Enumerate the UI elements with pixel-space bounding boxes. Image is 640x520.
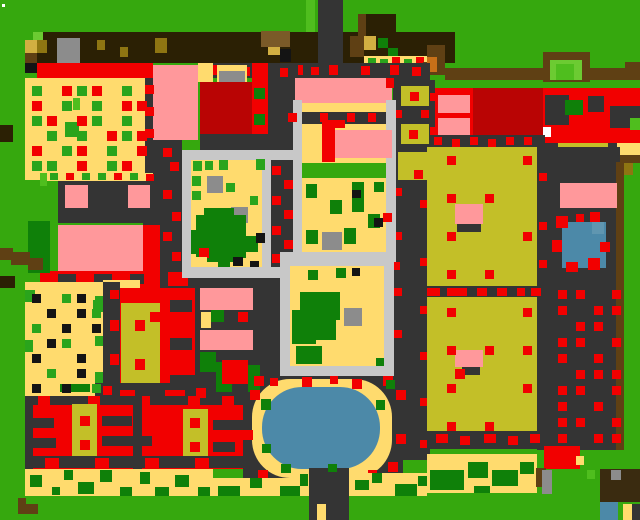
map-region: [280, 252, 396, 266]
map-region: [539, 173, 547, 181]
map-region: [318, 0, 343, 67]
map-region: [394, 330, 402, 338]
map-region: [182, 150, 302, 160]
map-region: [330, 200, 342, 214]
map-region: [374, 218, 383, 227]
map-region: [219, 71, 245, 82]
map-region: [37, 63, 153, 78]
map-region: [531, 288, 541, 296]
map-region: [352, 190, 361, 198]
map-region: [172, 212, 181, 221]
map-region: [100, 470, 112, 482]
crop-field-topleft-dot: [122, 116, 132, 126]
map-region: [556, 64, 574, 80]
map-region: [445, 80, 535, 88]
map-region: [293, 100, 302, 266]
crop-field-midleft-dot: [62, 384, 71, 393]
map-region: [114, 173, 122, 180]
map-region: [45, 458, 59, 468]
map-region: [252, 63, 268, 145]
map-region: [120, 487, 132, 496]
map-region: [412, 67, 421, 76]
map-region: [587, 470, 595, 479]
map-region: [520, 462, 534, 474]
map-region: [460, 436, 470, 445]
map-region: [436, 434, 448, 443]
crop-field-topleft-dot: [107, 161, 117, 171]
map-region: [335, 120, 345, 128]
map-region: [82, 173, 90, 180]
map-region: [256, 233, 265, 243]
crop-field-topleft-dot: [122, 131, 132, 141]
map-region: [455, 369, 465, 379]
dense-dot-grid-right-dot: [576, 322, 585, 331]
map-region: [517, 288, 525, 296]
map-region: [455, 204, 483, 224]
map-region: [396, 434, 406, 444]
map-region: [201, 312, 211, 328]
olive-field-right-dot: [447, 232, 456, 241]
dense-dot-grid-right-dot: [612, 338, 621, 347]
map-region: [65, 185, 88, 208]
crop-field-topleft-dot: [77, 161, 87, 171]
map-region: [135, 320, 145, 331]
dense-dot-grid-right-dot: [612, 306, 621, 315]
map-region: [170, 300, 192, 312]
map-region: [284, 210, 293, 219]
map-region: [219, 160, 228, 170]
map-region: [372, 473, 382, 483]
map-region: [233, 257, 243, 266]
map-region: [376, 358, 384, 366]
map-region: [328, 464, 337, 472]
olive-field-right-dot: [447, 384, 456, 393]
olive-field-right-dot: [523, 308, 532, 317]
map-region: [474, 486, 490, 493]
crop-field-midleft-dot: [92, 324, 101, 333]
map-region: [198, 487, 210, 496]
crop-field-topleft-dot: [77, 116, 87, 126]
map-region: [192, 176, 201, 186]
map-region: [110, 354, 119, 365]
crop-field-topleft-dot: [32, 101, 42, 111]
crop-field-topleft-dot: [62, 86, 72, 96]
map-region: [347, 113, 355, 122]
map-region: [222, 396, 234, 405]
map-region: [384, 252, 394, 376]
crop-field-midleft-dot: [47, 339, 56, 348]
map-region: [254, 376, 264, 386]
map-region: [330, 376, 338, 384]
map-region: [542, 470, 552, 494]
map-region: [213, 442, 235, 452]
map-region: [590, 68, 625, 80]
map-region: [211, 310, 224, 322]
map-region: [218, 486, 240, 496]
map-region: [280, 366, 394, 376]
map-region: [611, 470, 621, 480]
map-region: [470, 137, 478, 145]
map-region: [358, 14, 366, 36]
map-region: [355, 480, 369, 490]
map-region: [588, 96, 604, 112]
crop-field-topleft-dot: [107, 146, 117, 156]
map-region: [25, 40, 37, 53]
crop-field-topleft-dot: [92, 101, 102, 111]
map-region: [477, 288, 487, 296]
map-region: [374, 182, 384, 192]
map-region: [195, 458, 209, 468]
dense-dot-grid-right-dot: [558, 306, 567, 315]
map-region: [284, 180, 293, 189]
map-region: [145, 85, 154, 94]
map-region: [254, 88, 265, 99]
map-region: [103, 282, 120, 396]
crop-field-topleft-dot: [47, 161, 57, 171]
map-region: [261, 399, 271, 410]
map-region: [366, 14, 396, 36]
map-region: [455, 350, 483, 367]
crop-field-midleft-dot: [77, 309, 86, 318]
map-region: [205, 161, 213, 170]
map-region: [473, 88, 543, 137]
map-region: [352, 268, 360, 276]
map-region: [262, 387, 380, 469]
map-region: [556, 216, 568, 228]
map-region: [80, 416, 90, 426]
map-region: [376, 400, 385, 410]
map-region: [128, 185, 150, 208]
map-region: [492, 470, 518, 486]
map-region: [30, 418, 54, 428]
map-region: [388, 462, 398, 472]
map-region: [296, 346, 322, 364]
map-region: [200, 288, 253, 310]
map-region: [25, 340, 33, 352]
map-region: [198, 63, 213, 82]
map-region: [552, 240, 562, 252]
map-region: [378, 38, 388, 48]
map-region: [190, 418, 200, 428]
map-region: [130, 173, 138, 180]
crop-field-topleft-dot: [47, 131, 57, 141]
map-region: [394, 288, 402, 296]
olive-field-right-dot: [485, 346, 494, 355]
map-region: [250, 478, 262, 488]
map-region: [163, 148, 172, 157]
pixel-world-map[interactable]: [0, 0, 640, 520]
map-region: [295, 78, 392, 103]
map-region: [429, 127, 437, 135]
map-region: [135, 359, 145, 370]
map-region: [110, 290, 119, 299]
map-region: [140, 472, 150, 484]
olive-field-right-dot: [447, 194, 456, 203]
map-region: [300, 474, 308, 486]
map-region: [192, 191, 201, 200]
map-region: [361, 66, 370, 75]
olive-field-right-dot: [485, 194, 494, 203]
map-region: [250, 390, 260, 400]
map-region: [566, 262, 578, 272]
map-region: [336, 268, 346, 278]
crop-field-midleft-dot: [62, 339, 71, 348]
dense-dot-grid-right-dot: [576, 386, 585, 395]
map-region: [632, 504, 640, 520]
map-region: [102, 416, 132, 426]
crop-field-topleft-dot: [77, 146, 87, 156]
map-region: [196, 388, 206, 398]
crop-field-topleft-dot: [92, 116, 102, 126]
map-region: [25, 53, 37, 63]
olive-field-right-dot: [447, 422, 456, 431]
map-region: [306, 0, 315, 32]
map-region: [410, 92, 419, 101]
map-region: [497, 288, 507, 296]
map-region: [280, 486, 300, 496]
dense-dot-grid-right-dot: [594, 306, 603, 315]
map-region: [155, 38, 167, 53]
map-region: [457, 224, 481, 232]
map-region: [172, 252, 181, 261]
map-region: [80, 440, 90, 450]
crop-field-topleft-dot: [62, 146, 72, 156]
map-region: [447, 288, 467, 296]
map-region: [306, 184, 317, 198]
map-region: [163, 190, 172, 199]
crop-field-topleft-dot: [107, 131, 117, 141]
map-region: [226, 183, 235, 192]
map-region: [588, 258, 600, 270]
map-region: [18, 504, 38, 514]
map-region: [327, 152, 335, 162]
map-region: [617, 143, 640, 155]
map-region: [539, 222, 547, 230]
map-region: [322, 232, 342, 250]
map-region: [254, 114, 265, 125]
dense-dot-grid-right-dot: [558, 418, 567, 427]
olive-field-right-dot: [447, 346, 456, 355]
olive-field-right-dot: [485, 422, 494, 431]
map-region: [544, 446, 580, 469]
olive-field-right-dot: [523, 384, 532, 393]
map-region: [316, 320, 336, 340]
crop-field-midleft-dot: [32, 324, 41, 333]
map-region: [524, 137, 532, 145]
crop-field-midleft-dot: [77, 294, 86, 303]
crop-field-topleft-dot: [32, 146, 42, 156]
crop-field-topleft-dot: [137, 101, 147, 111]
crop-field-topleft-dot: [92, 86, 102, 96]
map-region: [344, 228, 356, 244]
map-region: [350, 36, 364, 57]
map-region: [207, 176, 223, 193]
map-region: [445, 68, 543, 80]
crop-field-topleft-dot: [62, 101, 72, 111]
crop-field-midleft-dot: [47, 369, 56, 378]
crop-field-topleft-dot: [137, 146, 147, 156]
map-region: [508, 436, 518, 445]
olive-field-right-dot: [523, 232, 532, 241]
dense-dot-grid-right-dot: [558, 354, 567, 363]
map-region: [200, 82, 252, 134]
map-region: [250, 196, 258, 205]
dense-dot-grid-right-dot: [612, 434, 621, 443]
map-region: [396, 390, 406, 400]
map-region: [576, 456, 584, 465]
map-region: [2, 4, 5, 7]
map-region: [200, 134, 268, 150]
map-region: [37, 40, 47, 53]
map-region: [97, 40, 105, 50]
dense-dot-grid-right-dot: [594, 322, 603, 331]
map-region: [222, 360, 248, 384]
map-region: [427, 288, 440, 296]
map-region: [170, 338, 192, 350]
map-region: [261, 31, 290, 47]
map-region: [143, 225, 160, 271]
map-region: [280, 49, 291, 62]
map-region: [38, 396, 50, 405]
map-region: [414, 170, 423, 179]
map-region: [560, 183, 617, 208]
map-region: [243, 430, 253, 440]
dense-dot-grid-right-dot: [558, 386, 567, 395]
map-region: [25, 63, 37, 73]
map-region: [95, 296, 103, 306]
map-region: [311, 67, 319, 75]
map-region: [600, 242, 610, 252]
dense-dot-grid-right-dot: [558, 402, 567, 411]
dense-dot-grid-right-dot: [576, 418, 585, 427]
map-region: [270, 378, 278, 386]
map-region: [66, 173, 74, 180]
map-region: [430, 470, 464, 490]
crop-field-topleft-dot: [77, 86, 87, 96]
map-region: [308, 270, 318, 280]
map-region: [238, 312, 248, 322]
dense-dot-grid-right-dot: [612, 290, 621, 299]
olive-field-right-dot: [523, 156, 532, 165]
map-region: [110, 320, 119, 331]
map-region: [193, 161, 202, 171]
map-region: [190, 442, 200, 452]
map-region: [352, 379, 362, 389]
dense-dot-grid-right-dot: [594, 402, 603, 411]
map-region: [292, 310, 316, 344]
map-region: [309, 468, 349, 520]
map-region: [506, 137, 514, 145]
map-region: [268, 47, 280, 55]
map-region: [530, 434, 540, 443]
map-region: [280, 68, 288, 77]
crop-field-midleft-dot: [32, 294, 41, 303]
map-region: [103, 386, 112, 395]
map-region: [625, 62, 640, 80]
map-region: [182, 267, 296, 278]
map-region: [153, 65, 198, 140]
map-region: [98, 173, 106, 180]
map-region: [488, 139, 496, 147]
map-region: [317, 504, 326, 520]
dense-dot-grid-right-dot: [612, 386, 621, 395]
olive-field-right-dot: [447, 308, 456, 317]
map-region: [0, 125, 13, 142]
map-region: [30, 475, 42, 487]
map-region: [539, 260, 547, 268]
map-region: [280, 252, 290, 376]
dense-dot-grid-right-dot: [612, 418, 621, 427]
map-region: [386, 380, 395, 389]
map-region: [95, 458, 109, 468]
crop-field-topleft-dot: [32, 86, 42, 96]
map-region: [600, 502, 618, 520]
crop-field-topleft-dot: [122, 101, 132, 111]
dense-dot-grid-right-dot: [576, 290, 585, 299]
map-region: [78, 482, 94, 494]
dense-dot-grid-right-dot: [594, 354, 603, 363]
map-region: [40, 173, 47, 186]
map-region: [262, 160, 271, 278]
map-region: [50, 173, 58, 180]
map-region: [590, 212, 600, 222]
map-region: [281, 464, 291, 473]
crop-field-midleft-dot: [32, 384, 41, 393]
map-region: [272, 196, 281, 205]
olive-field-right-dot: [485, 270, 494, 279]
crop-field-topleft-dot: [122, 161, 132, 171]
map-region: [409, 130, 418, 139]
map-region: [0, 276, 15, 288]
map-region: [368, 113, 376, 122]
map-region: [329, 65, 338, 75]
map-region: [175, 475, 189, 487]
crop-field-topleft-dot: [137, 131, 147, 141]
map-region: [386, 100, 396, 266]
map-region: [155, 487, 169, 496]
dense-dot-grid-right-dot: [576, 370, 585, 379]
map-region: [218, 260, 230, 267]
map-region: [335, 130, 392, 158]
map-region: [272, 166, 281, 175]
map-region: [28, 258, 43, 270]
dense-dot-grid-right-dot: [558, 290, 567, 299]
map-region: [213, 420, 243, 430]
olive-field-right-dot: [523, 346, 532, 355]
map-region: [592, 222, 604, 234]
map-region: [146, 174, 154, 181]
crop-field-topleft-dot: [77, 131, 87, 141]
map-region: [364, 36, 376, 50]
map-region: [386, 78, 394, 88]
crop-field-midleft-dot: [47, 309, 56, 318]
map-region: [468, 462, 488, 478]
map-region: [576, 214, 584, 222]
map-region: [256, 159, 265, 170]
crop-field-topleft-dot: [32, 116, 42, 126]
map-region: [284, 240, 293, 249]
map-region: [418, 476, 427, 486]
map-region: [150, 312, 160, 322]
map-region: [250, 261, 259, 267]
map-region: [438, 118, 470, 135]
dense-dot-grid-right-dot: [594, 434, 603, 443]
dense-dot-grid-right-dot: [558, 434, 567, 443]
crop-field-midleft-dot: [92, 384, 101, 393]
map-region: [484, 434, 496, 443]
map-region: [52, 487, 60, 495]
map-region: [102, 436, 152, 446]
